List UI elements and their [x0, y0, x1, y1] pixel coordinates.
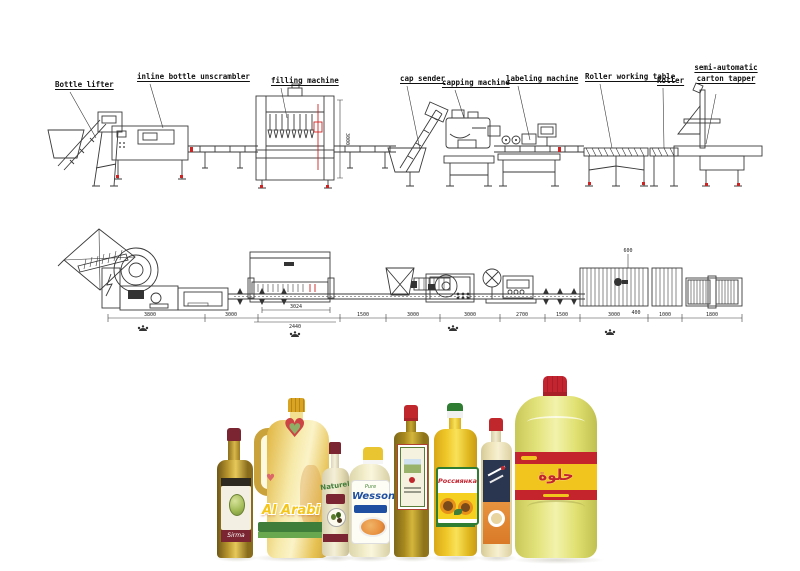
dim-3000d: 3000 — [608, 312, 620, 318]
dim-1000: 1000 — [659, 312, 671, 318]
conveyor-plan-2 — [334, 146, 396, 168]
bottle-cap — [329, 442, 341, 454]
filling-machine-plan: 3000 — [256, 84, 350, 188]
label-upper — [483, 460, 510, 502]
olive-graphic — [229, 494, 245, 516]
caster-mark-icon — [448, 325, 458, 331]
dim-1500a: 1500 — [357, 312, 369, 318]
leader-lines — [70, 84, 716, 150]
sunflower-band — [438, 493, 477, 519]
label-unscrambler: inline bottle unscrambler — [137, 72, 250, 81]
dim-3024: 3024 — [290, 304, 302, 310]
bottle-label — [397, 444, 428, 510]
labeling-machine-side — [483, 269, 536, 303]
dim-3000c: 3000 — [464, 312, 476, 318]
olive-badge — [327, 508, 346, 527]
hopper-elevator-side — [58, 229, 135, 290]
bottle-cap — [404, 405, 418, 418]
height-mark-600: 600 — [623, 248, 632, 254]
cap-sender-side — [386, 268, 450, 295]
carton-tapper-plan — [674, 83, 762, 186]
conveyor-plan-3 — [494, 146, 584, 152]
bottle-label: حلوة — [515, 452, 597, 500]
small-heart-icon: ♥ — [266, 474, 275, 484]
label-cap-sender: cap sender — [400, 74, 445, 83]
label-filling-machine: filling machine — [271, 76, 339, 85]
labeling-machine-plan — [498, 124, 560, 186]
roller-working-table-plan — [584, 148, 648, 186]
label-capping-machine: capping machine — [442, 78, 510, 87]
bottle-cap — [227, 428, 241, 441]
bottle-cap — [447, 403, 463, 411]
conveyor-plan-1 — [188, 146, 258, 168]
label-carton-tapper: semi-automatic carton tapper — [686, 62, 766, 85]
end-station-side — [686, 276, 742, 308]
caster-mark-icon — [290, 331, 300, 337]
roller-conveyor-side: 600 400 — [580, 248, 682, 316]
label-labeling-machine: labeling machine — [506, 74, 578, 83]
bottle-photo-row: Sirma ♥ ♥ ♥ Al Arabi Naturel — [0, 370, 800, 570]
dim-3800: 3800 — [144, 312, 156, 318]
dim-2440: 2440 — [289, 324, 301, 330]
dim-1800: 1800 — [706, 312, 718, 318]
landscape-graphic — [404, 459, 421, 473]
unscrambler-plan — [112, 126, 188, 179]
bottle-lifter-plan — [48, 112, 122, 186]
brand-al-arabi: Al Arabi — [256, 503, 326, 518]
height-mark-400: 400 — [631, 310, 640, 316]
bottle-cap — [363, 447, 383, 460]
brand-wesson: Wesson — [352, 491, 389, 502]
brand-halwa: حلوة — [515, 466, 597, 484]
conveyor-side — [228, 288, 585, 305]
heart-emblem-inner-icon: ♥ — [288, 422, 301, 437]
dim-3000b: 3000 — [407, 312, 419, 318]
top-view-diagram: 3000 — [0, 0, 800, 220]
bottle-cap — [288, 398, 305, 412]
label-bottle-lifter: Bottle lifter — [55, 80, 114, 89]
cap-sender-plan — [388, 102, 448, 186]
caster-mark-icon — [138, 325, 148, 331]
bottle-label: Россиянка — [436, 467, 479, 525]
bottle-cap — [543, 376, 567, 392]
caster-mark-icon — [605, 329, 615, 335]
dimension-row: 3800 3000 3024 2440 1500 3000 3000 2700 … — [108, 304, 742, 330]
vertical-dimension: 3000 — [344, 133, 350, 145]
production-line-brochure: 3000 — [0, 0, 800, 571]
dim-3000a: 3000 — [225, 312, 237, 318]
brand-rossiyanka: Россиянка — [438, 477, 477, 485]
bottle-cap — [489, 418, 503, 431]
food-photo-graphic — [359, 517, 387, 537]
filling-machine-side — [248, 252, 334, 302]
dim-1500b: 1500 — [556, 312, 568, 318]
label-lower — [483, 502, 510, 544]
bottle-label: Pure Wesson — [351, 480, 390, 544]
dim-2700: 2700 — [516, 312, 528, 318]
side-view-diagram: 600 400 3800 3000 3024 2440 1500 3000 30… — [0, 222, 800, 352]
bottle-label — [221, 486, 251, 530]
brand-sirma: Sirma — [221, 532, 251, 539]
sub-brand-pure: Pure — [352, 484, 389, 490]
capping-machine-plan — [444, 110, 500, 186]
label-roller: Roller — [657, 76, 684, 85]
